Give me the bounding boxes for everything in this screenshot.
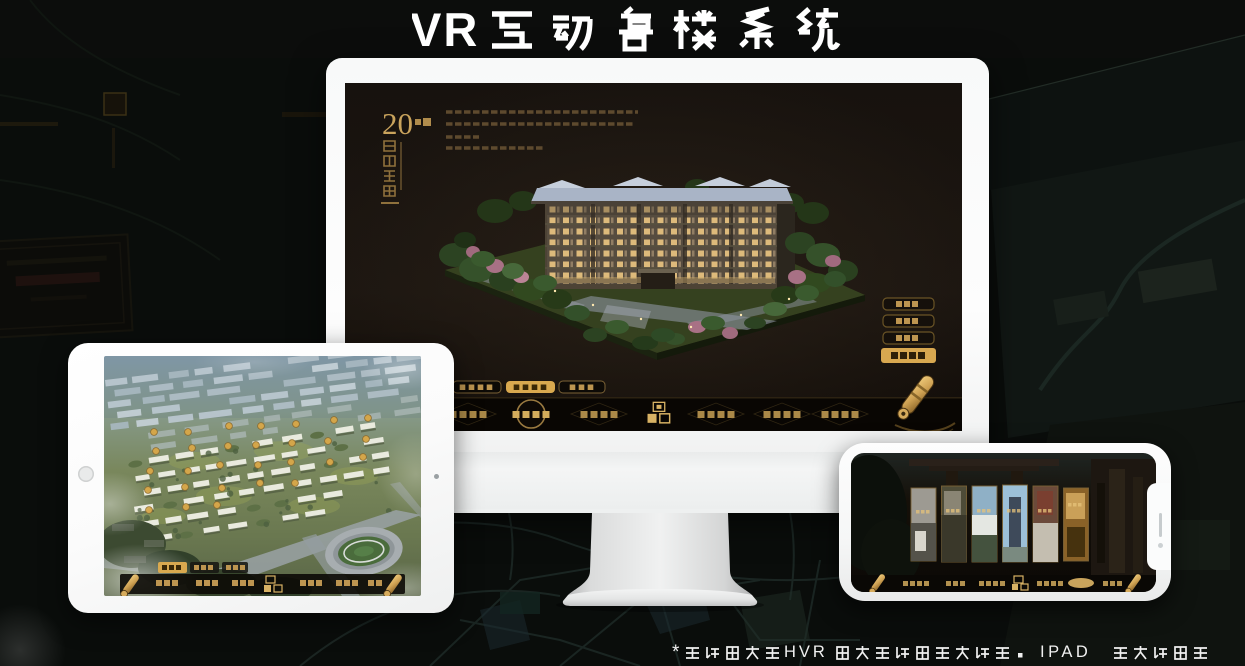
svg-text:20: 20	[382, 106, 413, 141]
svg-text:*: *	[672, 642, 680, 663]
svg-text:VR: VR	[412, 3, 479, 56]
svg-text:HVR: HVR	[784, 643, 828, 661]
svg-text:IPAD: IPAD	[1040, 643, 1091, 661]
